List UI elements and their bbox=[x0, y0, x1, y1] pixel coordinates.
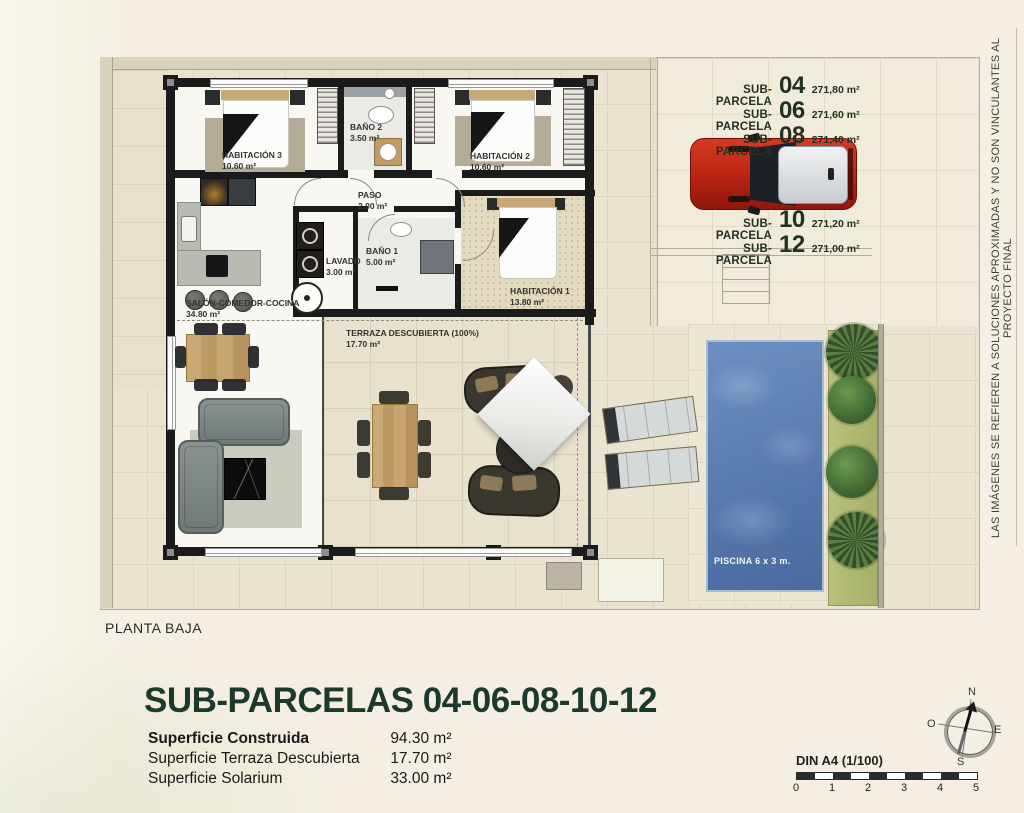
dining-chair bbox=[248, 346, 259, 368]
door-opening bbox=[455, 228, 461, 264]
spiky-plant bbox=[828, 512, 884, 568]
outdoor-chair bbox=[357, 420, 370, 446]
room-label-habitacion2: HABITACIÓN 210.60 m² bbox=[470, 151, 530, 173]
compass-e: E bbox=[994, 724, 1001, 736]
wall-hab1-top bbox=[455, 190, 595, 196]
swimming-pool bbox=[706, 340, 824, 592]
plot-boundary-right bbox=[878, 324, 884, 608]
dining-chair bbox=[222, 323, 246, 335]
pool-equipment bbox=[546, 562, 582, 590]
room-label-habitacion3: HABITACIÓN 310.60 m² bbox=[222, 150, 282, 172]
bed-habitacion1 bbox=[487, 198, 565, 284]
room-label-bano2: BAÑO 23.50 m² bbox=[350, 122, 382, 144]
room-label-terraza: TERRAZA DESCUBIERTA (100%)17.70 m² bbox=[346, 328, 479, 350]
area-row-solarium: Superficie Solarium 33.00 m² bbox=[148, 770, 451, 788]
door-opening bbox=[432, 170, 462, 178]
pillar bbox=[163, 75, 178, 90]
scale-tick: 4 bbox=[934, 782, 946, 794]
wall-bano2-hab2 bbox=[406, 78, 412, 176]
scale-tick: 2 bbox=[862, 782, 874, 794]
utility-pad bbox=[598, 558, 664, 602]
room-label-lavado: LAVADO3.00 m² bbox=[326, 256, 361, 278]
coffee-table bbox=[224, 458, 266, 500]
car-tailgate bbox=[848, 148, 853, 200]
sofa bbox=[198, 398, 290, 446]
dryer bbox=[296, 250, 324, 278]
pillar bbox=[583, 545, 598, 560]
outdoor-chair bbox=[418, 452, 431, 478]
outdoor-chair bbox=[379, 391, 409, 404]
compass-w: O bbox=[927, 718, 936, 730]
door-handle bbox=[376, 286, 398, 291]
driveway-edge-line bbox=[650, 58, 658, 326]
area-row-terraza: Superficie Terraza Descubierta 17.70 m² bbox=[148, 750, 451, 768]
room-label-salon: SALÓN-COMEDOR-COCINA34.80 m² bbox=[186, 298, 299, 320]
round-shrub bbox=[828, 376, 876, 424]
fridge bbox=[228, 178, 256, 206]
dining-chair bbox=[194, 323, 218, 335]
scale-tick: 1 bbox=[826, 782, 838, 794]
oven-microwave bbox=[200, 178, 228, 206]
outdoor-table bbox=[372, 404, 418, 488]
pool-label: PISCINA 6 x 3 m. bbox=[714, 556, 791, 566]
parcel-list-top: SUB-PARCELA 04 271,80 m² SUB-PARCELA 06 … bbox=[688, 72, 860, 146]
sofa bbox=[178, 440, 224, 534]
bathroom2-counter bbox=[344, 87, 406, 97]
scale-tick: 0 bbox=[790, 782, 802, 794]
door-opening bbox=[348, 170, 374, 178]
plot-boundary-left bbox=[100, 57, 113, 608]
room-label-paso: PASO2.00 m² bbox=[358, 190, 387, 212]
scale-bar bbox=[796, 772, 978, 780]
sink bbox=[390, 222, 412, 237]
dining-chair bbox=[194, 379, 218, 391]
scale-tick: 3 bbox=[898, 782, 910, 794]
glass-wall bbox=[322, 316, 324, 547]
room-label-habitacion1: HABITACIÓN 113.80 m² bbox=[510, 286, 570, 308]
side-porch bbox=[113, 70, 168, 390]
room-label-bano1: BAÑO 15.00 m² bbox=[366, 246, 398, 268]
car-hatch-detail bbox=[828, 168, 834, 180]
scale-tick: 5 bbox=[970, 782, 982, 794]
upper-floor-projection-line bbox=[177, 320, 583, 321]
area-row-construida: Superficie Construida 94.30 m² bbox=[148, 730, 451, 748]
wall-right bbox=[585, 78, 594, 325]
parcel-list-bottom: SUB-PARCELA 10 271,20 m² SUB-PARCELA 12 … bbox=[688, 206, 860, 255]
sink bbox=[384, 88, 395, 99]
scale-label: DIN A4 (1/100) bbox=[796, 753, 883, 768]
parcel-row-08: SUB-PARCELA 08 271,40 m² bbox=[688, 122, 860, 146]
cooktop bbox=[206, 255, 228, 277]
washer bbox=[296, 222, 324, 250]
wall-left bbox=[166, 78, 175, 556]
parcel-row-10: SUB-PARCELA 10 271,20 m² bbox=[688, 206, 860, 230]
round-shrub bbox=[826, 446, 878, 498]
side-disclaimer: LAS IMÁGENES SE REFIEREN A SOLUCIONES AP… bbox=[990, 28, 1014, 548]
window bbox=[205, 548, 322, 557]
upper-floor-projection-line-right bbox=[577, 318, 578, 546]
car-roof bbox=[778, 146, 848, 204]
dining-table bbox=[186, 334, 250, 382]
shower-drain bbox=[379, 143, 397, 161]
dining-chair bbox=[222, 379, 246, 391]
disclaimer-rule bbox=[1016, 28, 1017, 546]
pillar bbox=[163, 545, 178, 560]
outdoor-chair bbox=[357, 452, 370, 478]
floor-label: PLANTA BAJA bbox=[105, 620, 202, 636]
wardrobe bbox=[563, 88, 585, 166]
wall-right-thin bbox=[588, 325, 591, 547]
dining-chair bbox=[175, 346, 186, 368]
parcel-row-06: SUB-PARCELA 06 271,60 m² bbox=[688, 97, 860, 121]
outdoor-chair bbox=[379, 487, 409, 500]
plot-boundary-top bbox=[100, 57, 656, 70]
compass-s: S bbox=[957, 756, 964, 768]
car-vent bbox=[728, 196, 750, 202]
page-title: SUB-PARCELAS 04-06-08-10-12 bbox=[144, 681, 657, 721]
shower bbox=[420, 240, 454, 274]
outdoor-chair bbox=[418, 420, 431, 446]
parcel-row-12: SUB-PARCELA 12 271,00 m² bbox=[688, 231, 860, 255]
window bbox=[210, 79, 308, 88]
kitchen-sink bbox=[181, 216, 197, 242]
parcel-row-04: SUB-PARCELA 04 271,80 m² bbox=[688, 72, 860, 96]
pillar bbox=[583, 75, 598, 90]
wall-middle-bottom bbox=[293, 309, 596, 317]
window bbox=[355, 548, 572, 557]
compass-n: N bbox=[968, 686, 976, 698]
window bbox=[448, 79, 554, 88]
wardrobe bbox=[317, 88, 338, 144]
wardrobe bbox=[414, 88, 435, 144]
spiky-plant bbox=[826, 324, 882, 380]
